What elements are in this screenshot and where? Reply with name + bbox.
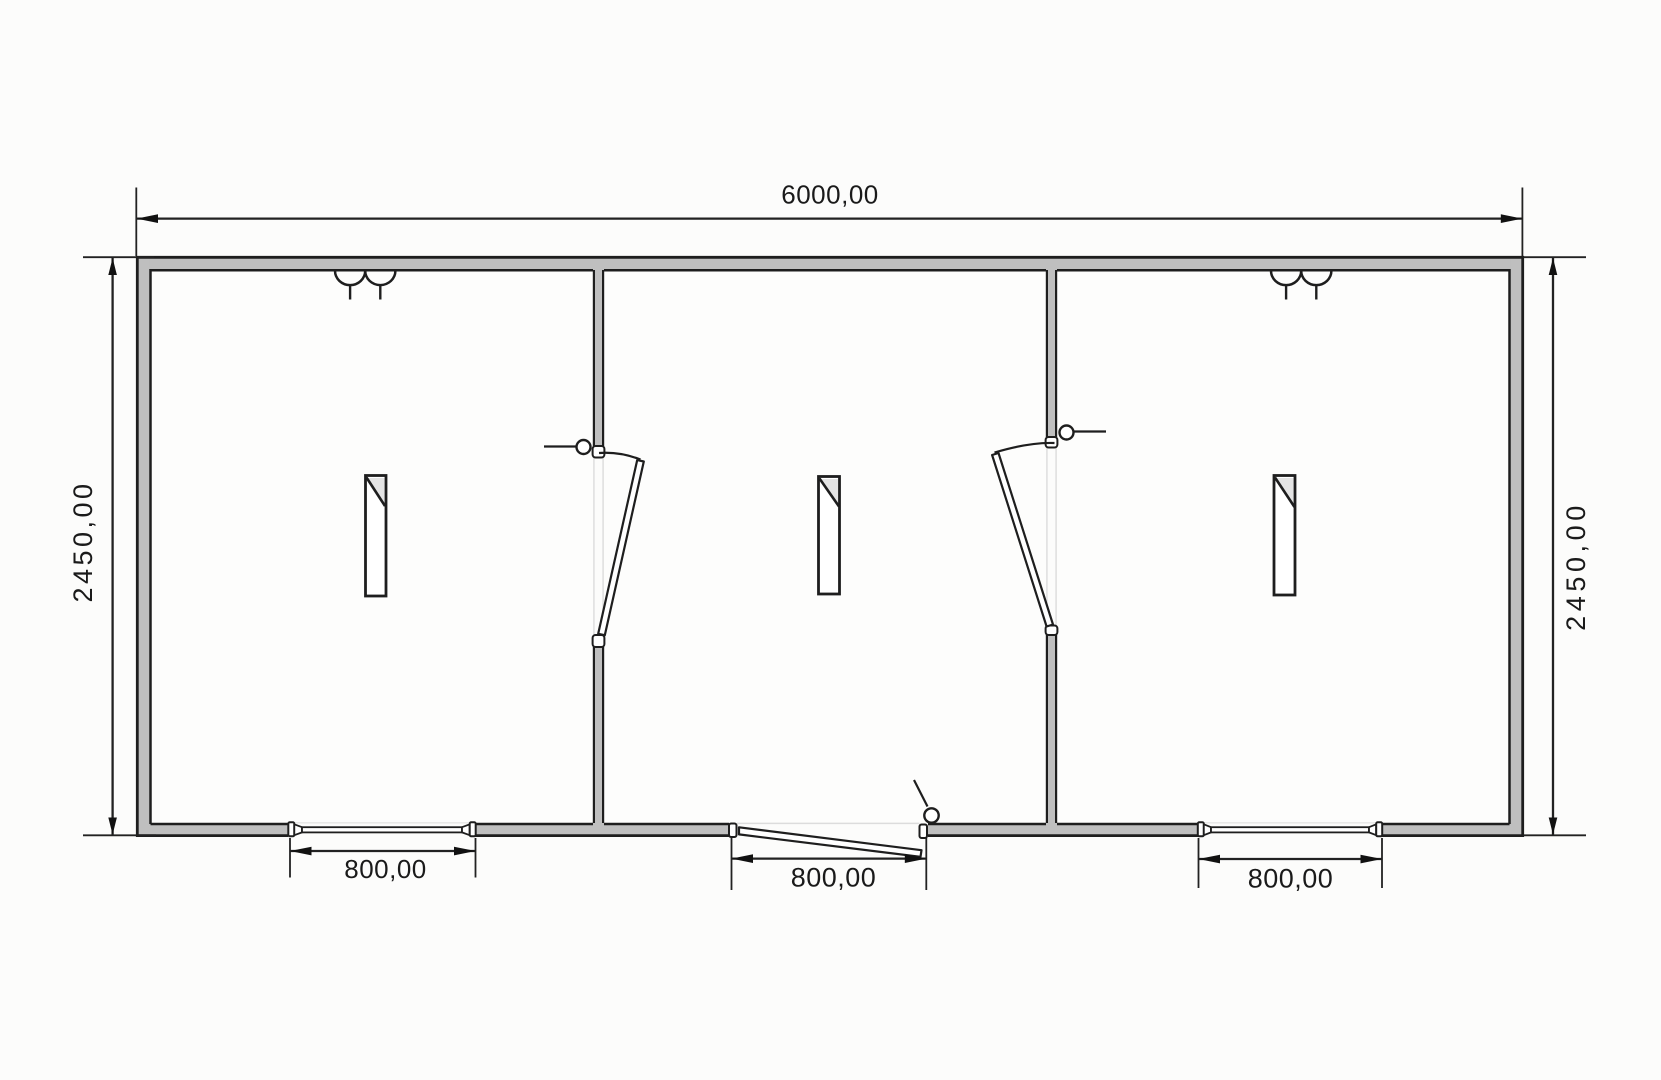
svg-text:2450,00: 2450,00: [1561, 501, 1591, 631]
svg-text:800,00: 800,00: [791, 863, 877, 893]
svg-text:6000,00: 6000,00: [781, 179, 878, 209]
svg-text:800,00: 800,00: [344, 854, 427, 884]
svg-text:2450,00: 2450,00: [68, 480, 98, 602]
svg-text:800,00: 800,00: [1248, 864, 1334, 894]
